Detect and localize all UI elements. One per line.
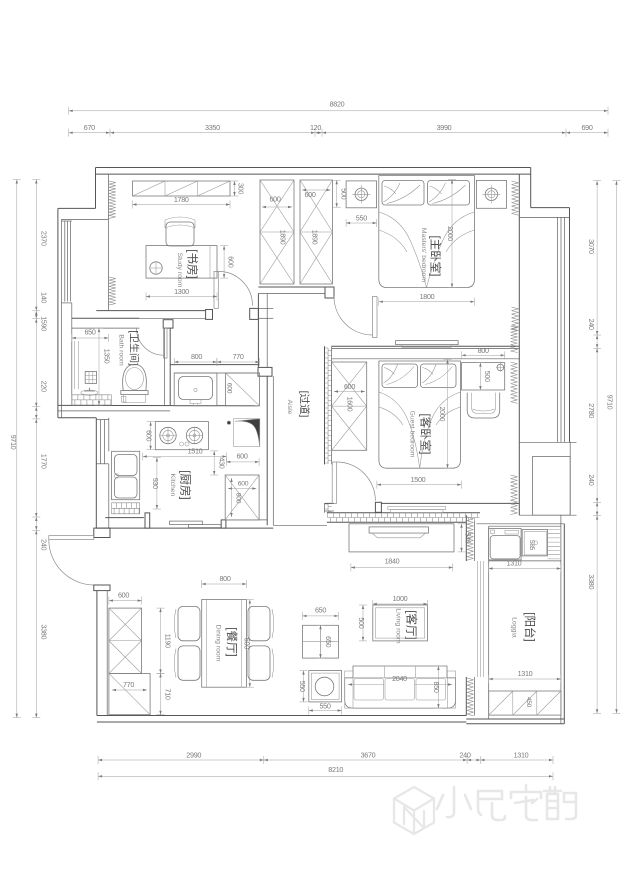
svg-text:1840: 1840 (385, 557, 400, 566)
svg-text:Kitchen: Kitchen (169, 474, 176, 497)
svg-text:Aisle: Aisle (286, 400, 293, 415)
svg-text:300: 300 (237, 183, 246, 194)
svg-text:1770: 1770 (40, 454, 49, 469)
svg-text:800: 800 (219, 574, 230, 583)
svg-text:9710: 9710 (606, 395, 615, 410)
svg-text:600: 600 (236, 452, 247, 461)
svg-text:600: 600 (118, 591, 129, 600)
svg-text:600: 600 (145, 430, 154, 441)
svg-text:1300: 1300 (174, 287, 189, 296)
svg-text:Dining room: Dining room (215, 625, 222, 662)
svg-text:500: 500 (483, 371, 492, 382)
svg-text:600: 600 (226, 383, 233, 394)
svg-text:600: 600 (344, 382, 355, 391)
svg-text:1190: 1190 (164, 634, 173, 649)
svg-text:[主卧室]: [主卧室] (429, 236, 443, 277)
svg-text:120: 120 (310, 123, 321, 132)
svg-text:220: 220 (40, 381, 49, 392)
svg-text:650: 650 (324, 636, 333, 647)
svg-text:3380: 3380 (40, 624, 49, 639)
svg-text:2000: 2000 (446, 226, 455, 241)
svg-text:1310: 1310 (514, 751, 529, 760)
svg-text:800: 800 (235, 493, 242, 504)
svg-text:140: 140 (40, 292, 49, 303)
svg-text:1500: 1500 (411, 475, 426, 484)
svg-text:1310: 1310 (507, 559, 522, 568)
svg-text:600: 600 (269, 195, 280, 204)
svg-text:1890: 1890 (279, 230, 288, 245)
svg-text:8210: 8210 (328, 765, 343, 774)
svg-text:1000: 1000 (393, 594, 408, 603)
svg-text:650: 650 (315, 606, 326, 615)
svg-text:[餐厅]: [餐厅] (225, 627, 239, 656)
svg-text:240: 240 (587, 319, 596, 330)
svg-text:[厨房]: [厨房] (179, 470, 192, 499)
svg-text:240: 240 (40, 539, 49, 550)
svg-text:1890: 1890 (311, 230, 320, 245)
svg-text:1600: 1600 (346, 397, 355, 412)
svg-text:3070: 3070 (587, 239, 596, 254)
svg-text:[客卧室]: [客卧室] (419, 414, 433, 455)
svg-text:850: 850 (432, 682, 441, 693)
svg-text:Guest bedroom: Guest bedroom (409, 411, 416, 458)
svg-text:2990: 2990 (186, 751, 201, 760)
svg-text:Bath room: Bath room (118, 334, 125, 366)
svg-text:540: 540 (464, 532, 473, 543)
svg-text:500: 500 (340, 188, 349, 199)
svg-text:[客厅]: [客厅] (405, 610, 419, 639)
svg-text:690: 690 (581, 123, 592, 132)
svg-text:Study room: Study room (176, 253, 183, 288)
svg-text:800: 800 (191, 352, 202, 361)
svg-text:3670: 3670 (361, 751, 376, 760)
svg-text:1510: 1510 (188, 447, 203, 456)
svg-text:2040: 2040 (392, 674, 407, 683)
svg-text:770: 770 (123, 680, 134, 689)
svg-text:1350: 1350 (103, 349, 112, 364)
svg-text:Loggia: Loggia (511, 617, 518, 638)
svg-text:[过道]: [过道] (298, 391, 311, 418)
svg-text:8820: 8820 (330, 100, 345, 109)
svg-text:800: 800 (478, 346, 489, 355)
svg-text:[卫生间]: [卫生间] (128, 330, 141, 366)
svg-text:1310: 1310 (518, 669, 533, 678)
svg-text:9710: 9710 (9, 435, 18, 450)
svg-text:2000: 2000 (438, 406, 447, 421)
svg-text:600: 600 (238, 481, 249, 488)
svg-text:550: 550 (319, 702, 330, 711)
svg-text:[书房]: [书房] (186, 249, 199, 278)
svg-text:670: 670 (84, 123, 95, 132)
svg-text:1800: 1800 (420, 292, 435, 301)
svg-text:550: 550 (356, 214, 367, 223)
svg-text:3990: 3990 (437, 123, 452, 132)
svg-text:[阳台]: [阳台] (523, 612, 537, 641)
svg-text:3350: 3350 (205, 123, 220, 132)
svg-text:1590: 1590 (40, 316, 49, 331)
svg-text:240: 240 (459, 751, 470, 760)
svg-text:2370: 2370 (40, 231, 49, 246)
svg-text:600: 600 (226, 256, 235, 267)
svg-text:Living room: Living room (395, 608, 402, 643)
svg-text:3380: 3380 (587, 574, 596, 589)
svg-text:240: 240 (587, 474, 596, 485)
svg-text:650: 650 (84, 328, 95, 337)
svg-text:550: 550 (298, 681, 307, 692)
svg-text:2780: 2780 (587, 403, 596, 418)
svg-text:600: 600 (304, 190, 315, 199)
svg-text:930: 930 (151, 478, 160, 489)
svg-text:500: 500 (357, 617, 366, 628)
svg-text:450: 450 (525, 697, 532, 708)
svg-text:1780: 1780 (174, 195, 189, 204)
svg-text:585: 585 (528, 540, 535, 551)
svg-text:430: 430 (218, 457, 227, 468)
svg-text:710: 710 (164, 689, 173, 700)
svg-text:Masters' bedroom: Masters' bedroom (420, 228, 427, 283)
svg-text:770: 770 (232, 352, 243, 361)
